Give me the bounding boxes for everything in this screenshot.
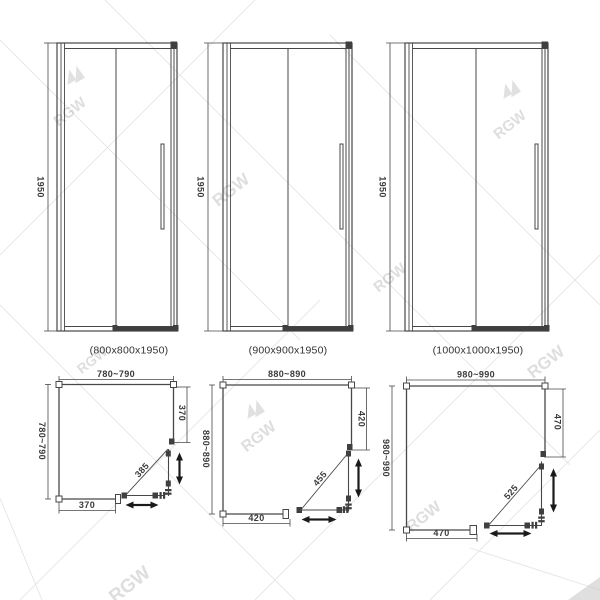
watermark-brand-text: RGW xyxy=(209,169,254,210)
technical-drawing-page: RGW RGW RGW RGW RGW RGW RGW RGW RGW 1950 xyxy=(0,0,600,600)
roller-glyph xyxy=(346,506,348,513)
door-marker xyxy=(122,493,128,499)
door-handle xyxy=(161,144,164,229)
side-dim-label: 420 xyxy=(248,513,264,523)
depth-dim-label: 780~790 xyxy=(37,422,47,460)
panel-end-block xyxy=(169,439,175,445)
roller-glyph xyxy=(345,504,352,506)
watermark-line xyxy=(330,35,600,305)
bottom-guide-block xyxy=(348,325,354,332)
side-dim-label: 370 xyxy=(177,405,187,421)
roller-glyph xyxy=(160,492,162,499)
depth-dim-label: 980~990 xyxy=(381,439,391,477)
watermark-brand-text: RGW xyxy=(490,107,530,143)
bottom-guide-block xyxy=(472,325,477,332)
top-roller-block xyxy=(346,42,353,49)
roller-glyph xyxy=(538,517,545,519)
side-dim-label: 470 xyxy=(553,414,563,430)
door-marker xyxy=(153,493,159,499)
panel-end-cap xyxy=(283,510,289,519)
door-frame xyxy=(57,43,177,331)
corner-post xyxy=(404,527,410,533)
depth-dim-label: 880~890 xyxy=(201,430,211,468)
door-marker xyxy=(166,451,171,457)
bottom-guide-block xyxy=(173,325,179,332)
watermark-brand-text: RGW xyxy=(105,562,155,600)
top-roller-block xyxy=(171,42,178,49)
door-bottom-bar xyxy=(284,327,352,332)
height-dim-label: 1950 xyxy=(378,176,388,198)
watermark-line xyxy=(430,430,600,600)
roller-glyph xyxy=(532,522,534,529)
slide-direction-arrow-vertical-icon xyxy=(550,469,557,513)
panel-end-cap xyxy=(116,495,121,504)
watermark-corner-triangle xyxy=(568,577,600,600)
roller-glyph xyxy=(163,492,165,499)
size-label: (1000x1000x1950) xyxy=(433,345,524,357)
bottom-guide-block xyxy=(113,325,118,332)
drawing-canvas: RGW RGW RGW RGW RGW RGW RGW RGW RGW 1950 xyxy=(0,0,600,600)
entry-dim-label: 525 xyxy=(502,483,520,502)
roller-glyph xyxy=(345,507,352,509)
door-marker xyxy=(539,509,544,515)
watermark-line xyxy=(105,0,570,465)
entry-dim-label: 385 xyxy=(133,461,151,480)
bottom-guide-block xyxy=(283,325,288,332)
door-marker xyxy=(346,451,351,457)
size-label: (900x900x1950) xyxy=(249,345,328,357)
watermark-line xyxy=(0,498,42,600)
entry-dim-label: 455 xyxy=(311,469,329,488)
corner-post xyxy=(56,496,62,502)
corner-post xyxy=(349,382,355,388)
plan-view-800: 780~790 780~790 385 370 370 xyxy=(37,369,191,514)
slide-direction-arrow-horizontal-icon xyxy=(302,516,337,523)
slide-direction-arrow-horizontal-icon xyxy=(490,530,532,537)
slide-direction-arrow-vertical-icon xyxy=(355,459,362,498)
door-handle xyxy=(340,144,343,229)
door-marker xyxy=(346,496,351,502)
door-bottom-bar xyxy=(114,327,177,332)
side-dim-label: 370 xyxy=(79,500,95,510)
door-elevation-1000: 1950 (1000x1000x1950) xyxy=(378,42,550,357)
watermark-leaf-logo-icon xyxy=(62,64,85,86)
slide-direction-arrow-vertical-icon xyxy=(176,453,183,485)
width-dim-label: 880~890 xyxy=(268,369,306,379)
door-marker xyxy=(337,507,343,513)
corner-post xyxy=(404,383,410,389)
watermark-line xyxy=(470,548,600,590)
door-bottom-bar xyxy=(473,327,548,332)
width-dim-label: 980~990 xyxy=(457,370,495,380)
panel-end-block xyxy=(541,451,547,457)
corner-post xyxy=(56,382,62,388)
side-dim-label: 470 xyxy=(433,528,449,538)
size-label: (800x800x1950) xyxy=(90,345,169,357)
roller-glyph xyxy=(165,493,172,495)
corner-post xyxy=(171,382,177,388)
width-dim-label: 780~790 xyxy=(97,369,135,379)
slide-direction-arrow-horizontal-icon xyxy=(126,502,159,509)
roller-glyph xyxy=(165,489,172,491)
watermark-line xyxy=(0,0,255,255)
watermark-brand-text: RGW xyxy=(524,341,569,382)
entry-diagonal-line xyxy=(300,452,350,512)
watermark-leaf-logo-icon xyxy=(498,78,521,100)
top-roller-block xyxy=(542,42,549,49)
door-marker xyxy=(166,481,171,487)
watermark-brand-text: RGW xyxy=(238,418,280,456)
plan-view-900: 880~890 880~890 455 420 420 xyxy=(201,369,370,527)
door-handle xyxy=(535,144,538,229)
corner-post xyxy=(220,511,226,517)
height-dim-label: 1950 xyxy=(36,176,46,198)
panel-end-block xyxy=(347,444,353,450)
plan-view-1000: 980~990 980~990 525 470 470 xyxy=(381,370,566,542)
corner-post xyxy=(220,382,226,388)
bottom-guide-block xyxy=(544,325,550,332)
door-elevation-800: 1950 (800x800x1950) xyxy=(36,42,179,357)
panel-end-cap xyxy=(470,526,477,535)
corner-post xyxy=(542,383,548,389)
roller-glyph xyxy=(343,506,345,513)
watermark-leaf-logo-icon xyxy=(242,398,265,420)
roller-glyph xyxy=(535,522,537,529)
side-dim-label: 420 xyxy=(357,411,367,427)
door-marker xyxy=(525,523,531,529)
height-dim-label: 1950 xyxy=(196,176,206,198)
roller-glyph xyxy=(538,520,545,522)
